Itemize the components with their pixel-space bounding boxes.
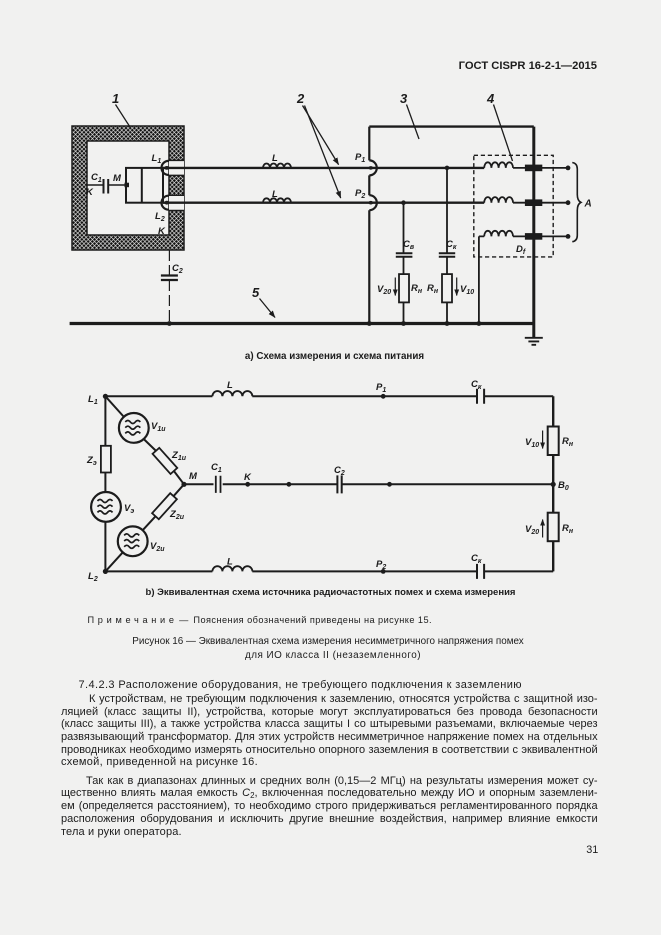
svg-text:C2: C2 bbox=[172, 263, 183, 275]
svg-text:V20: V20 bbox=[525, 524, 539, 536]
svg-text:C2: C2 bbox=[334, 465, 345, 477]
svg-text:K: K bbox=[158, 226, 166, 237]
svg-text:A: A bbox=[584, 199, 592, 210]
svg-text:M: M bbox=[189, 471, 198, 482]
svg-text:P2: P2 bbox=[376, 559, 386, 571]
svg-text:Cк: Cк bbox=[446, 239, 457, 251]
svg-text:L: L bbox=[227, 557, 233, 568]
svg-text:2: 2 bbox=[296, 91, 305, 106]
svg-text:Rн: Rн bbox=[411, 283, 423, 295]
svg-text:Df: Df bbox=[516, 244, 526, 256]
svg-text:4: 4 bbox=[486, 91, 495, 106]
svg-text:V2u: V2u bbox=[150, 541, 165, 553]
svg-text:1: 1 bbox=[112, 91, 119, 106]
svg-text:K: K bbox=[244, 472, 252, 483]
svg-text:V10: V10 bbox=[525, 437, 539, 449]
svg-text:C1: C1 bbox=[211, 462, 222, 474]
svg-text:Zэ: Zэ bbox=[86, 455, 97, 467]
svg-text:Cк: Cк bbox=[471, 553, 482, 565]
svg-text:L: L bbox=[272, 153, 278, 164]
svg-text:Cк: Cк bbox=[471, 379, 482, 391]
svg-text:K: K bbox=[86, 187, 94, 198]
svg-text:P1: P1 bbox=[376, 382, 386, 394]
svg-text:L2: L2 bbox=[155, 211, 165, 223]
svg-text:Cв: Cв bbox=[403, 239, 415, 251]
svg-text:5: 5 bbox=[252, 285, 260, 300]
svg-text:Z2u: Z2u bbox=[169, 509, 185, 521]
svg-text:3: 3 bbox=[400, 91, 408, 106]
svg-text:Z1u: Z1u bbox=[171, 450, 187, 462]
svg-text:V1u: V1u bbox=[151, 421, 166, 433]
svg-text:L1: L1 bbox=[152, 153, 162, 165]
svg-text:P2: P2 bbox=[355, 188, 365, 200]
svg-text:P1: P1 bbox=[355, 152, 365, 164]
svg-text:Rн: Rн bbox=[427, 283, 439, 295]
svg-text:Vэ: Vэ bbox=[124, 503, 134, 515]
svg-text:L2: L2 bbox=[88, 571, 98, 583]
svg-text:L: L bbox=[272, 189, 278, 200]
svg-text:V10: V10 bbox=[460, 284, 474, 296]
svg-text:Rн: Rн bbox=[562, 436, 574, 448]
svg-text:L1: L1 bbox=[88, 394, 98, 406]
svg-text:V20: V20 bbox=[377, 284, 391, 296]
svg-text:Rн: Rн bbox=[562, 523, 574, 535]
svg-text:L: L bbox=[227, 380, 233, 391]
svg-text:C1: C1 bbox=[91, 172, 102, 184]
svg-text:B0: B0 bbox=[558, 480, 569, 492]
svg-text:M: M bbox=[113, 173, 122, 184]
